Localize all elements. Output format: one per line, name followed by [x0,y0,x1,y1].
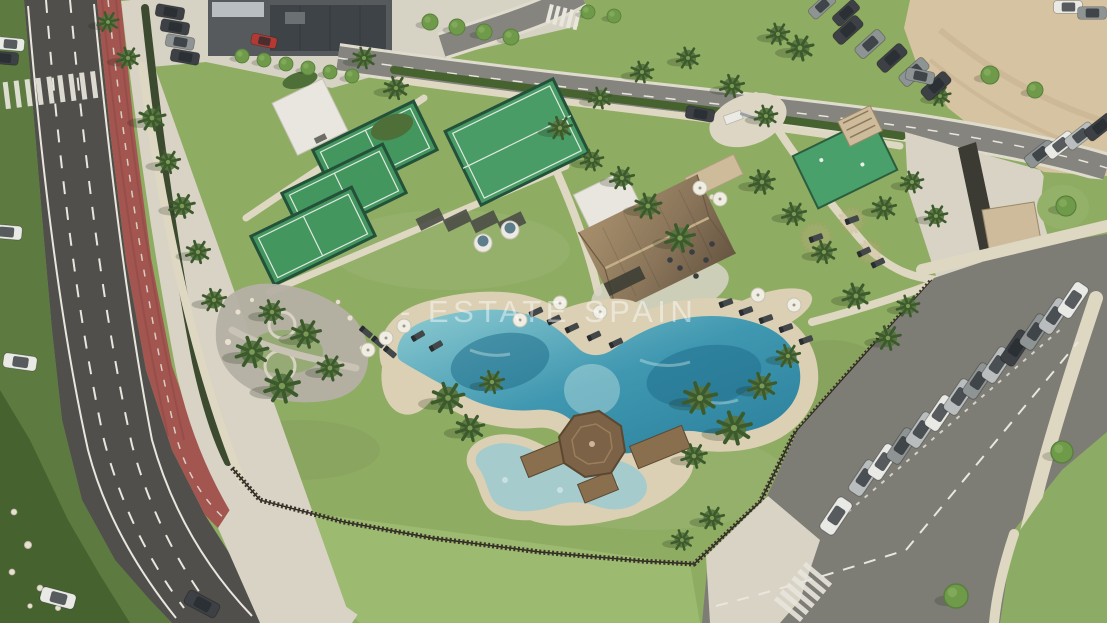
planter [474,234,492,252]
car [0,224,23,241]
rooftop-unit [285,12,305,24]
parasol [713,192,727,206]
parasol [693,181,707,195]
pool-shallow [564,364,620,416]
scene-svg: - ESTATE SPAIN [0,0,1107,623]
aerial-resort-render: - ESTATE SPAIN [0,0,1107,623]
rock [24,541,31,548]
car [1078,7,1107,20]
rock [224,338,231,345]
rock [28,604,33,609]
building-facade [212,2,264,17]
rock [9,569,15,575]
rock [250,298,255,303]
watermark-text: - ESTATE SPAIN [400,294,697,329]
parasol [379,331,393,345]
parasol [361,343,375,357]
rock [235,309,241,315]
car [0,36,25,51]
rock [11,509,17,515]
rock [347,315,353,321]
planter [501,221,519,239]
parasol [787,298,801,312]
car [0,50,19,65]
parasol [751,288,765,302]
rock [336,300,341,305]
building-roof [270,5,386,51]
